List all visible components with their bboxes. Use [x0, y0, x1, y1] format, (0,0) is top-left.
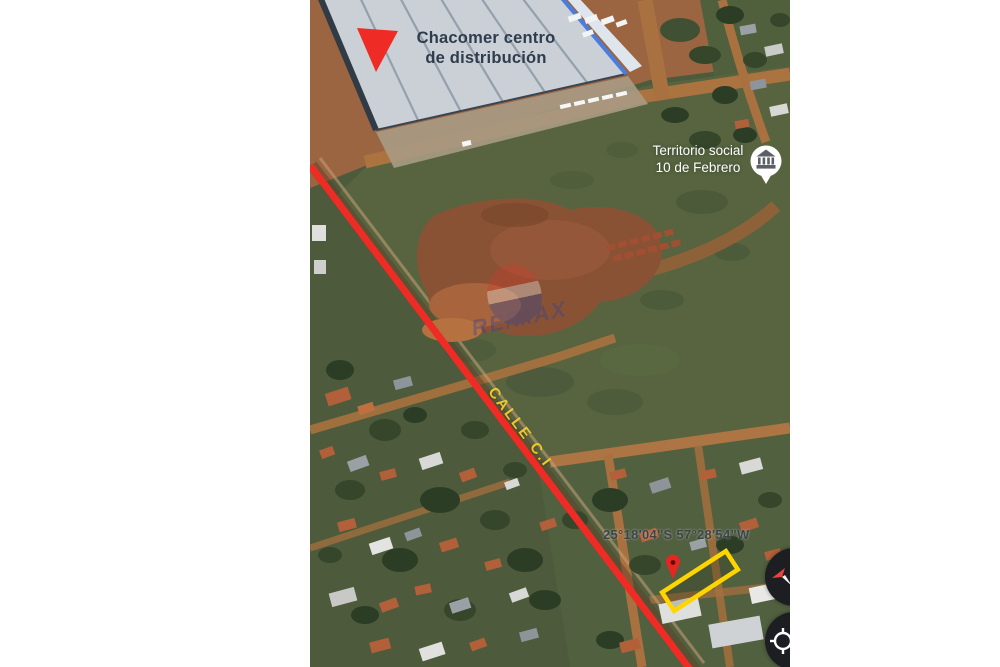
compass-icon — [769, 564, 790, 590]
page-root: { "page": { "background_color": "#ffffff… — [0, 0, 1000, 667]
satellite-map[interactable]: RE/MAX Chacomer centro de distribución T… — [310, 0, 790, 667]
my-location-icon — [769, 627, 790, 655]
satellite-imagery — [310, 0, 790, 667]
